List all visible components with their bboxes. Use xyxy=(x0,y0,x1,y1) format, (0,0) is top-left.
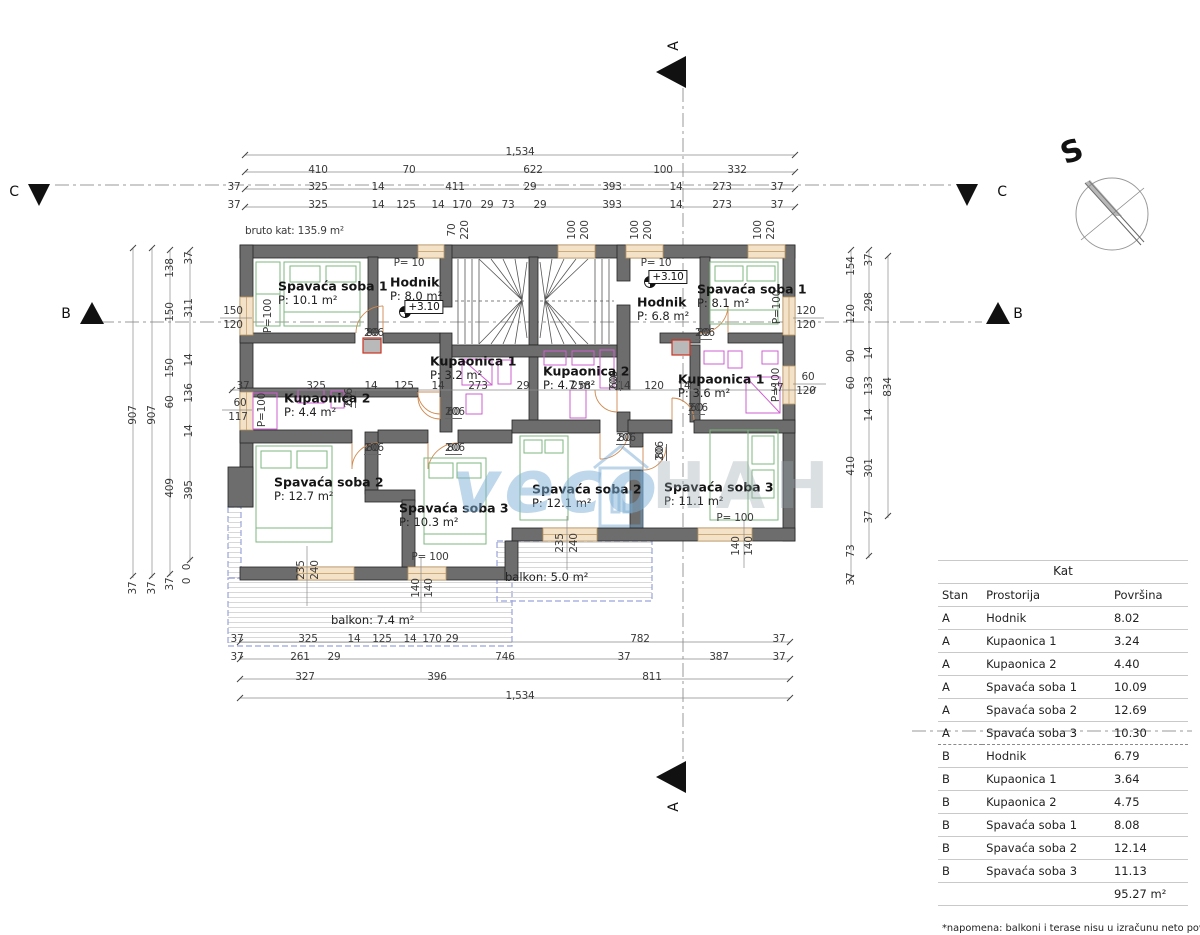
col-prostorija: Prostorija xyxy=(982,584,1110,607)
col-povrsina: Površina xyxy=(1110,584,1188,607)
table-row: ASpavaća soba 110.09 xyxy=(938,676,1188,699)
section-marker-c-left xyxy=(28,184,50,206)
section-marker-b-right xyxy=(986,302,1010,324)
floorplan-page: { "compass": {"label": "S"}, "watermark"… xyxy=(0,0,1200,935)
table-row: ASpavaća soba 212.69 xyxy=(938,699,1188,722)
table-row: AKupaonica 13.24 xyxy=(938,630,1188,653)
section-marker-c-right xyxy=(956,184,978,206)
table-row: BSpavaća soba 212.14 xyxy=(938,837,1188,860)
table-header-row: Stan Prostorija Površina xyxy=(938,584,1188,607)
section-marker-a-bottom xyxy=(656,761,686,793)
table-total-row: 95.27 m² xyxy=(938,883,1188,906)
table-row: BKupaonica 24.75 xyxy=(938,791,1188,814)
section-marker-b-left xyxy=(80,302,104,324)
table-row: ASpavaća soba 310.30 xyxy=(938,722,1188,745)
table-title: Kat xyxy=(938,561,1188,584)
table-row: BSpavaća soba 18.08 xyxy=(938,814,1188,837)
col-stan: Stan xyxy=(938,584,982,607)
table-row: BSpavaća soba 311.13 xyxy=(938,860,1188,883)
footnote: *napomena: balkoni i terase nisu u izrač… xyxy=(942,923,1200,934)
table-row: AKupaonica 24.40 xyxy=(938,653,1188,676)
table-row: BHodnik6.79 xyxy=(938,745,1188,768)
table-row: AHodnik8.02 xyxy=(938,607,1188,630)
compass-icon xyxy=(1076,178,1148,250)
area-table: Kat Stan Prostorija Površina AHodnik8.02… xyxy=(938,560,1188,906)
table-row: BKupaonica 13.64 xyxy=(938,768,1188,791)
section-marker-a-top xyxy=(656,56,686,88)
